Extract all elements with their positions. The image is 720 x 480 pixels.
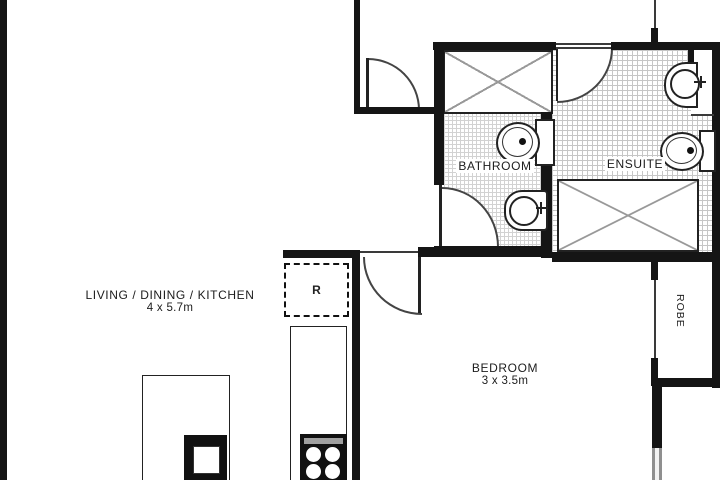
bathroom-toilet-seat-icon — [502, 127, 533, 157]
wall-top-bathroom — [433, 42, 556, 50]
ensuite-toilet-dot-icon — [687, 147, 694, 154]
burner-icon — [325, 464, 340, 479]
robe-label: ROBE — [674, 294, 686, 348]
ensuite-label: ENSUITE — [598, 158, 672, 171]
bathtub-icon — [443, 50, 553, 114]
floor-plan: R LIVING / DINING / KITCHEN 4 x 5.7m BED… — [0, 0, 720, 480]
wall-hall-bottom — [354, 107, 444, 114]
wall-left-exterior — [0, 0, 7, 480]
bathroom-name: BATHROOM — [456, 159, 533, 173]
ensuite-door-header-line — [556, 43, 611, 45]
living-room-label: LIVING / DINING / KITCHEN 4 x 5.7m — [60, 289, 280, 315]
wall-right-exterior — [712, 42, 720, 388]
bedroom-dimensions: 3 x 3.5m — [430, 375, 580, 388]
ensuite-basin-bowl-icon — [670, 69, 700, 99]
shower-icon — [557, 179, 699, 252]
ensuite-name: ENSUITE — [605, 157, 665, 171]
bathroom-toilet-dot-icon — [519, 138, 526, 145]
bathroom-basin-bowl-icon — [509, 196, 539, 226]
refrigerator-box: R — [284, 263, 349, 317]
refrigerator-label: R — [312, 283, 321, 297]
wall-robe-left-top-stub — [651, 258, 658, 280]
stove-panel-icon — [304, 438, 343, 444]
robe-name: ROBE — [674, 294, 686, 328]
bathroom-label: BATHROOM — [450, 160, 540, 173]
wall-top-ensuite — [611, 42, 720, 50]
burner-icon — [306, 447, 321, 462]
bedroom-door-arc — [363, 257, 422, 315]
wall-ensuite-bottom — [552, 252, 720, 262]
wall-kitchen-top — [283, 250, 360, 258]
wall-bedroom-door-stub — [418, 247, 434, 257]
wall-bedroom-right — [652, 387, 662, 448]
bathroom-door-leaf — [439, 185, 442, 246]
bedroom-door-leaf — [418, 257, 421, 313]
entry-door-arc — [368, 58, 420, 110]
ensuite-basin-tap-tick-icon — [700, 76, 702, 88]
bedroom-name: BEDROOM — [430, 362, 580, 375]
bathroom-basin-tap-tick-icon — [540, 202, 542, 214]
bedroom-window — [652, 448, 662, 480]
wall-top-partition-stub — [651, 28, 658, 46]
living-room-name: LIVING / DINING / KITCHEN — [60, 289, 280, 302]
sink-bowl-icon — [193, 446, 220, 474]
entry-door-leaf — [366, 58, 369, 108]
wall-kitchen-bedroom — [352, 250, 360, 480]
wall-hall-left — [354, 0, 360, 114]
burner-icon — [306, 464, 321, 479]
living-room-dimensions: 4 x 5.7m — [60, 302, 280, 315]
burner-icon — [325, 447, 340, 462]
ensuite-door-leaf — [556, 48, 558, 101]
wall-robe-bottom — [652, 378, 720, 387]
ensuite-door-header-line2 — [556, 47, 611, 49]
wall-bathroom-bottom — [434, 246, 552, 257]
wall-bathroom-left — [434, 43, 444, 185]
bedroom-door-header-line — [358, 251, 420, 253]
vanity-bottom-line — [691, 114, 714, 116]
bedroom-label: BEDROOM 3 x 3.5m — [430, 362, 580, 388]
